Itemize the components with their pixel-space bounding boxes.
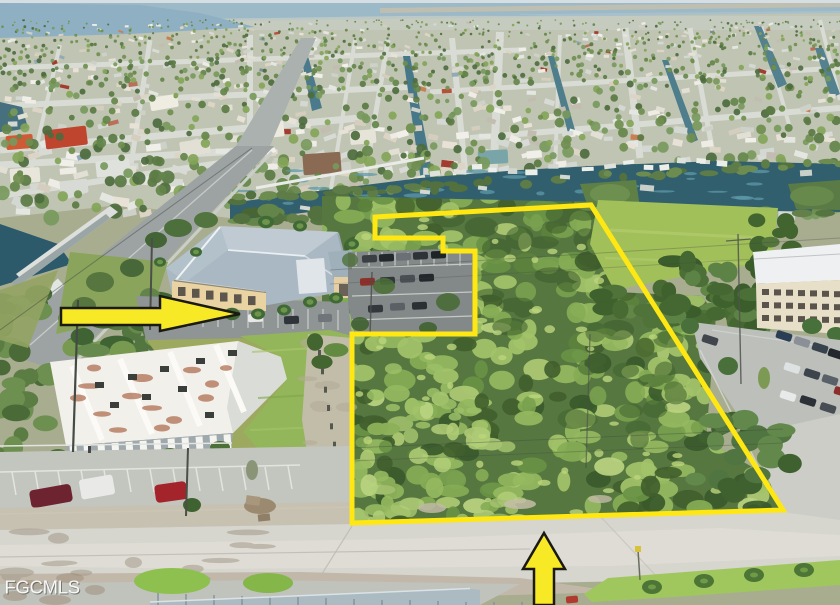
svg-text:FGCMLS: FGCMLS [5,577,80,598]
